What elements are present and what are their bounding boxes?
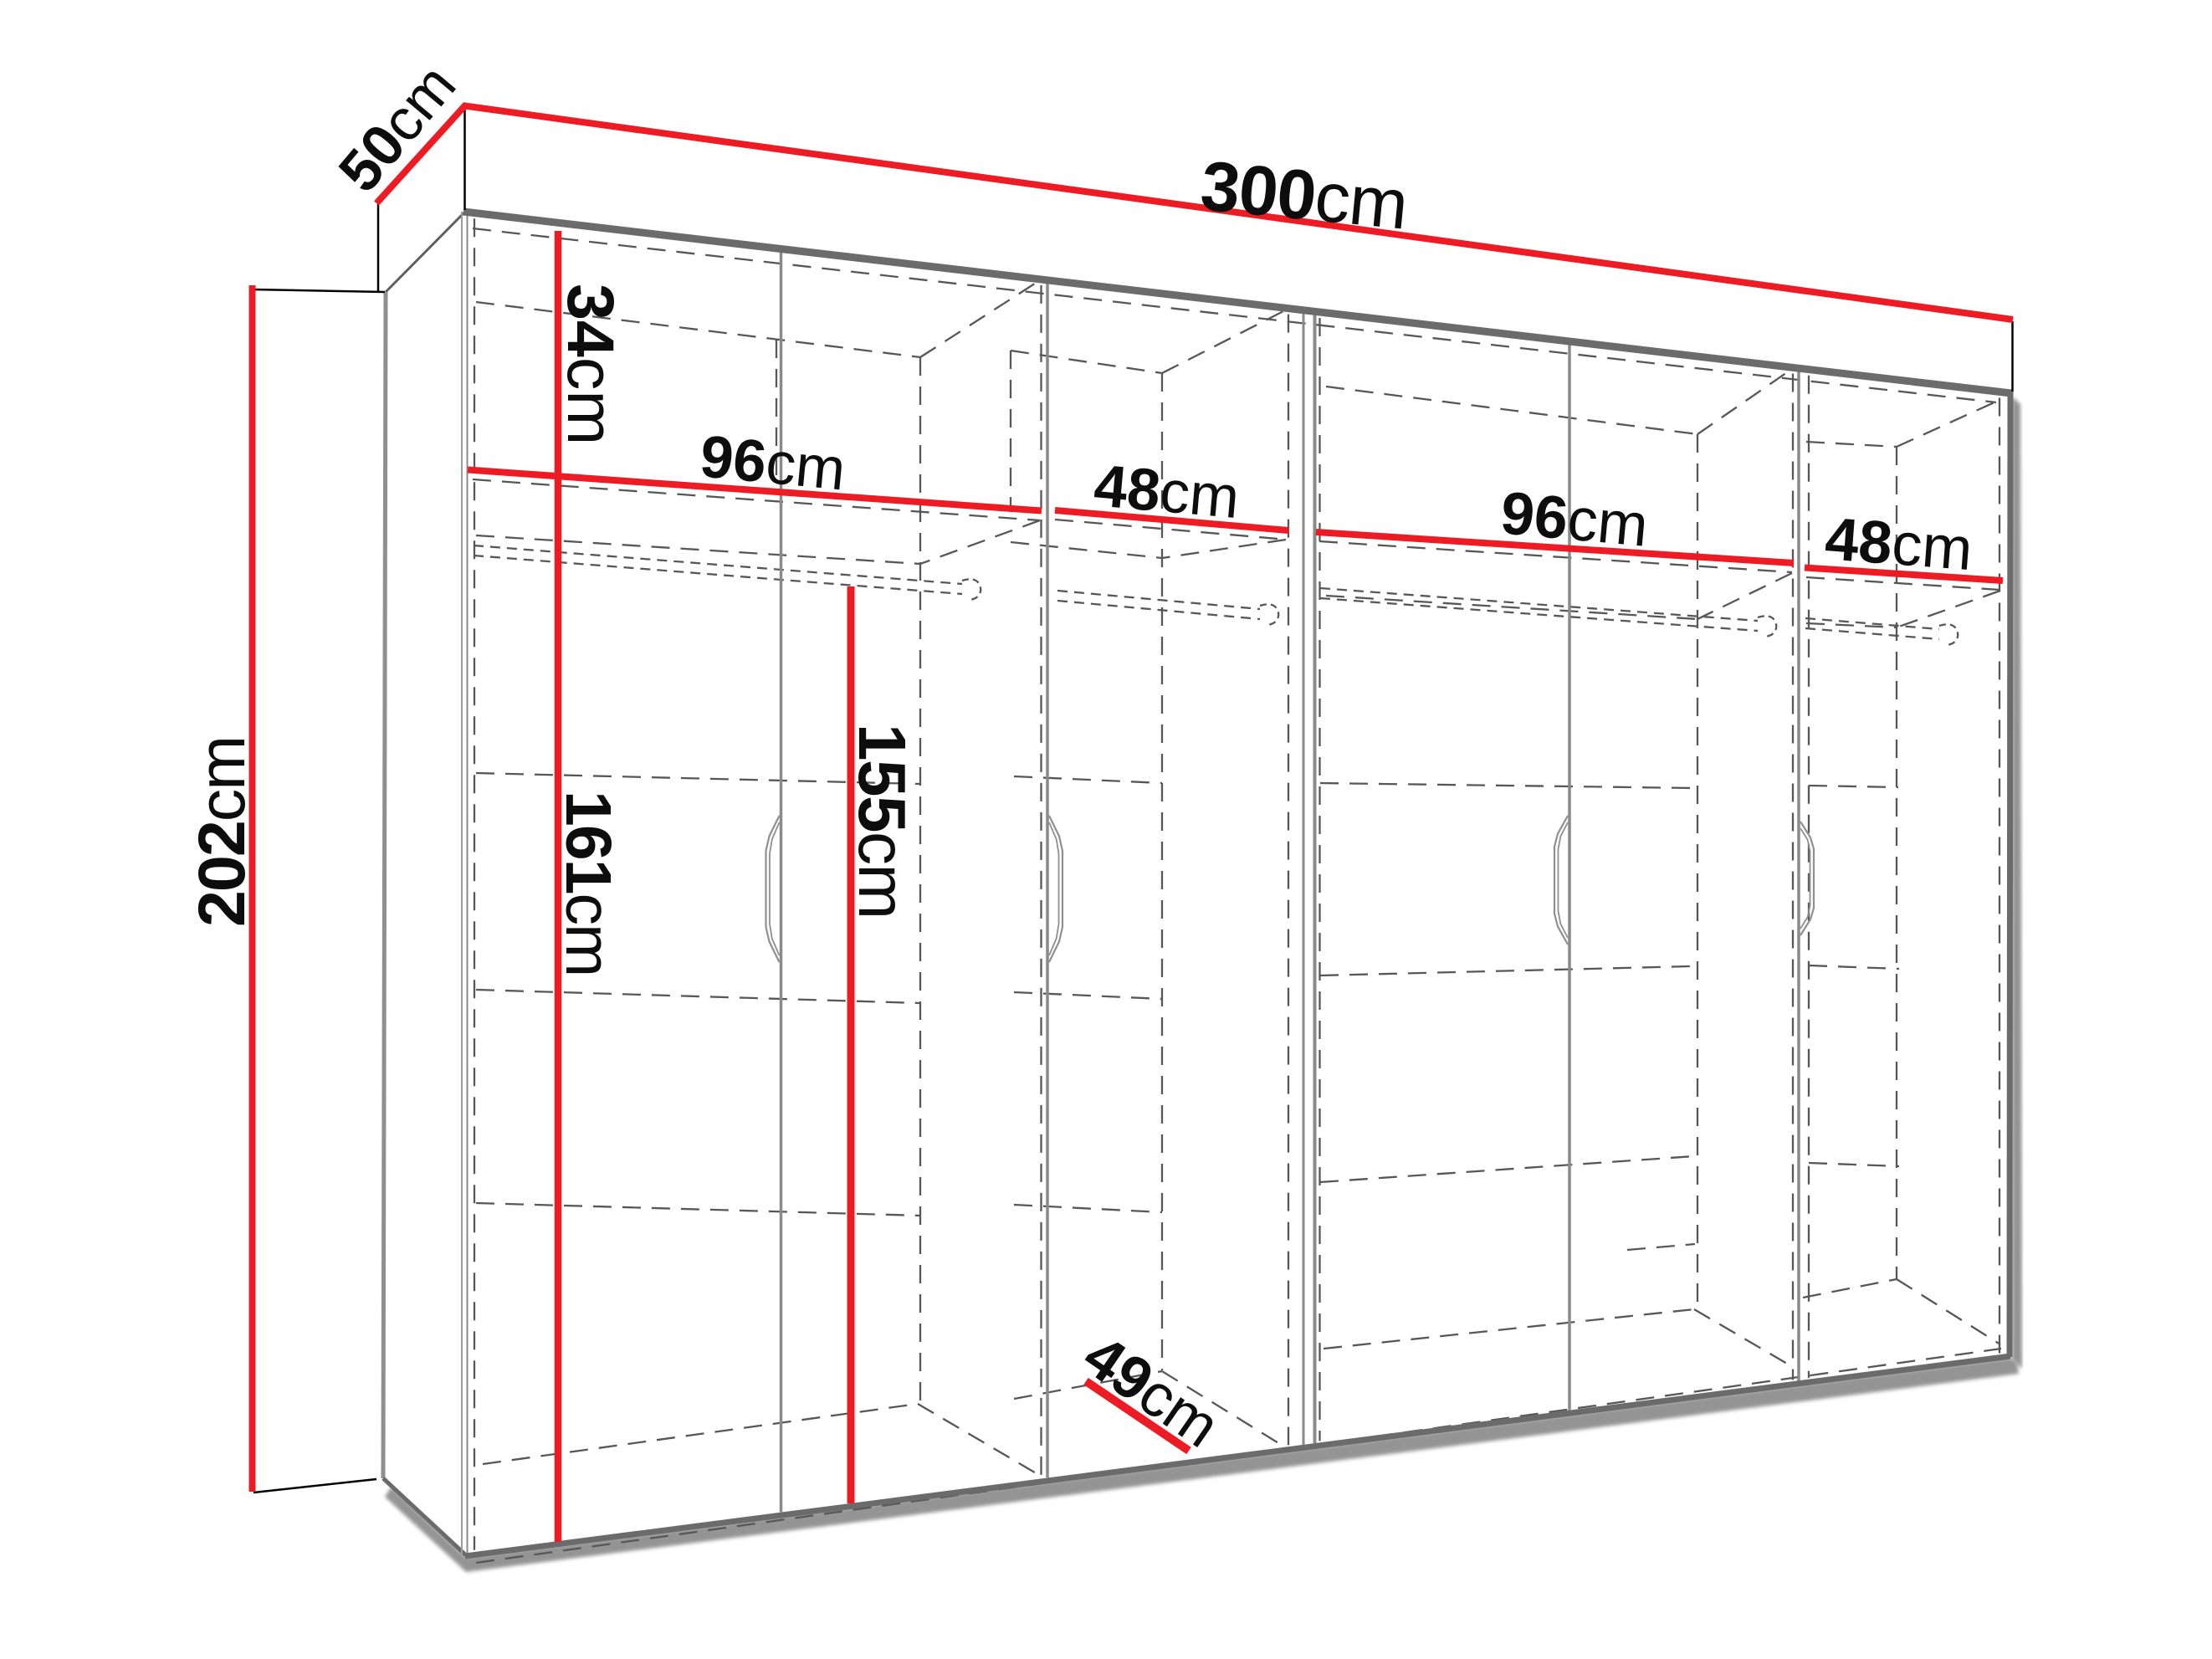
- svg-text:48cm: 48cm: [1823, 505, 1975, 583]
- svg-text:34cm: 34cm: [554, 284, 628, 445]
- svg-text:96cm: 96cm: [697, 423, 847, 503]
- svg-text:155cm: 155cm: [845, 724, 919, 919]
- svg-text:96cm: 96cm: [1498, 479, 1651, 560]
- svg-text:48cm: 48cm: [1092, 453, 1242, 531]
- svg-text:161cm: 161cm: [552, 791, 624, 975]
- svg-text:202cm: 202cm: [184, 737, 259, 927]
